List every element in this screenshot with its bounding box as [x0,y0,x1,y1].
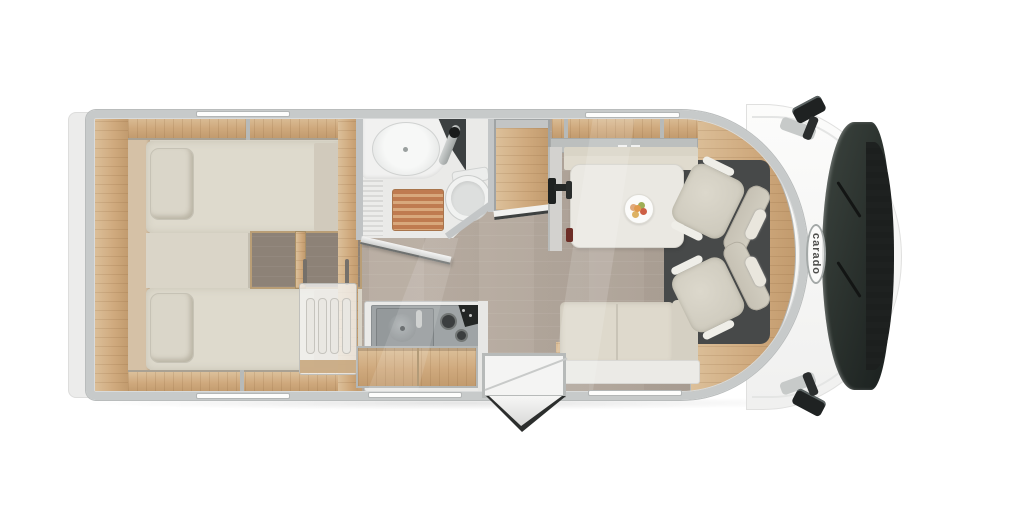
brand-logo: carado [800,222,832,286]
window-marker [588,390,682,396]
window-marker [368,392,462,398]
window-marker [196,393,290,399]
window-marker [585,112,680,118]
entry-door-open [489,396,562,426]
body-shell-wall [86,110,808,400]
motorhome-floorplan: carado [0,0,1024,512]
window-marker [196,111,290,117]
brand-logo-text: carado [806,224,826,284]
front-grille [866,142,894,370]
